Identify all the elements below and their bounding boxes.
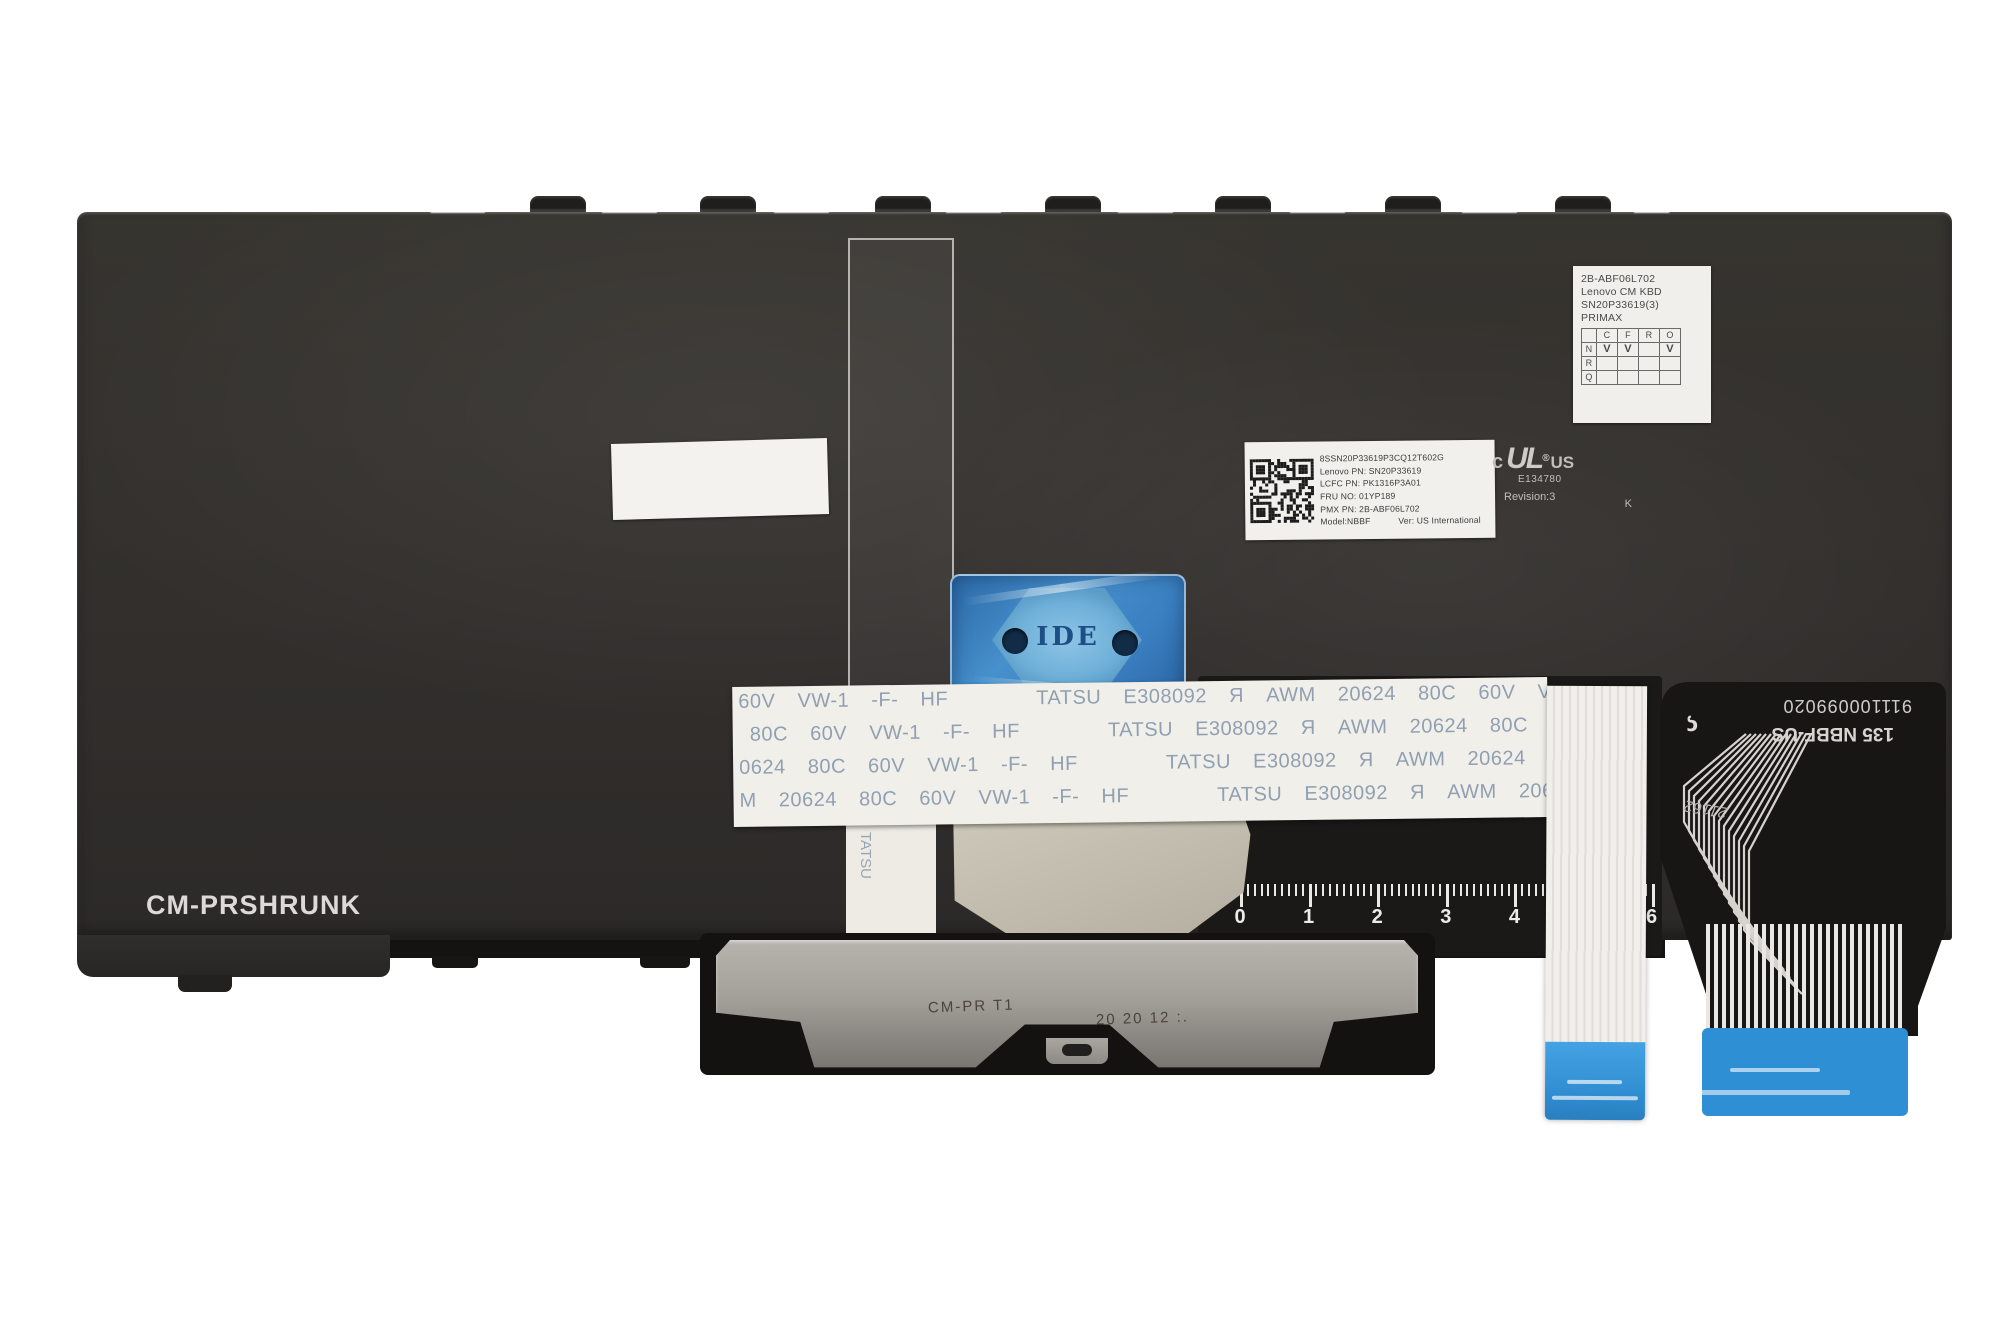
ruler-tick	[1309, 884, 1312, 907]
top-edge-highlight	[430, 209, 1670, 213]
ruler-tick	[1439, 884, 1441, 896]
ruler-tick	[1398, 884, 1400, 896]
primax-table-cell: V	[1660, 343, 1681, 357]
stiffener-highlight	[1552, 1096, 1638, 1100]
ruler-tick	[1528, 884, 1530, 896]
primax-table-cell: Q	[1582, 371, 1597, 385]
plate-bottom-tab	[178, 975, 232, 992]
ruler-tick	[1254, 884, 1256, 896]
primax-part-number: 2B-ABF06L702	[1581, 273, 1705, 286]
ruler-tick	[1363, 884, 1365, 896]
plate-lip-tab	[432, 956, 478, 968]
ruler-tick	[1357, 884, 1359, 896]
ruler-label-3: 3	[1440, 906, 1451, 929]
primax-spec-label: 2B-ABF06L702 Lenovo CM KBD SN20P33619(3)…	[1573, 266, 1711, 423]
plate-lip-tab	[640, 956, 690, 968]
ul-us: US	[1551, 454, 1575, 472]
primax-table-cell	[1639, 343, 1660, 357]
ruler-tick	[1487, 884, 1489, 896]
ruler-tick	[1343, 884, 1345, 896]
ruler-tick	[1288, 884, 1290, 896]
film-tail: TATSU	[846, 814, 936, 946]
ruler-tick	[1329, 884, 1331, 896]
bracket-center-tab	[1046, 1038, 1108, 1064]
ruler-tick	[1350, 884, 1352, 896]
primax-table-cell	[1597, 357, 1618, 371]
stiffener-highlight	[1730, 1068, 1820, 1072]
bracket-stamp-date: 20 20 12 :.	[1096, 1008, 1189, 1028]
primax-serial: SN20P33619(3)	[1581, 299, 1705, 312]
qr-version: Ver: US International	[1398, 515, 1481, 526]
flex-part-number: 911100099020	[1783, 696, 1912, 716]
qr-code	[1250, 459, 1315, 524]
ruler-label-4: 4	[1509, 906, 1520, 929]
ruler-tick	[1432, 884, 1434, 896]
ribbon-marking-row: 0624 80C 60V VW-1 -F- HF TATSU E308092 Я…	[739, 743, 1549, 780]
ruler-tick	[1480, 884, 1482, 896]
ruler-label-1: 1	[1303, 906, 1314, 929]
primax-option-table: CFRONVVVRQ	[1581, 328, 1681, 385]
primax-brand: PRIMAX	[1581, 312, 1705, 325]
ul-logo: UL®	[1506, 446, 1547, 472]
primax-table-cell	[1639, 357, 1660, 371]
ul-certification-mark: c UL® US E134780 K Revision:3	[1492, 446, 1622, 503]
qr-model: Model:NBBF	[1320, 515, 1398, 528]
ruler-label-2: 2	[1372, 906, 1383, 929]
ruler-tick	[1315, 884, 1317, 896]
ruler-tick	[1377, 884, 1380, 907]
primax-table-cell	[1582, 329, 1597, 343]
photo-canvas: 2B-ABF06L702 Lenovo CM KBD SN20P33619(3)…	[0, 0, 2000, 1333]
ul-canada-c: c	[1492, 452, 1503, 472]
ruler-tick	[1473, 884, 1475, 896]
ruler-tick	[1336, 884, 1338, 896]
registered-icon: ®	[1542, 453, 1547, 464]
qr-barcode-label: 8SSN20P33619P3CQ12T602G Lenovo PN: SN20P…	[1244, 440, 1495, 541]
film-tail-marking: TATSU	[857, 832, 874, 879]
ruler-tick	[1281, 884, 1283, 896]
ul-file-number: E134780	[1518, 474, 1622, 485]
ruler-tick	[1267, 884, 1269, 896]
primax-table-cell	[1639, 371, 1660, 385]
stiffener-highlight	[1567, 1080, 1622, 1084]
bracket-center-slot	[1062, 1044, 1092, 1056]
ide-marking: IDE	[952, 622, 1184, 652]
ruler-tick	[1508, 884, 1510, 896]
plate-marking-cm-prshrunk: CM-PRSHRUNK	[146, 890, 361, 921]
backlight-film-ribbon: 60V VW-1 -F- HF TATSU E308092 Я AWM 2062…	[732, 677, 1549, 827]
ruler-tick	[1384, 884, 1386, 896]
ruler-tick	[1322, 884, 1324, 896]
ruler-tick	[1453, 884, 1455, 896]
primax-table-cell	[1660, 371, 1681, 385]
ruler-tick	[1542, 884, 1544, 896]
qr-model-line: Model:NBBFVer: US International	[1320, 514, 1481, 528]
ul-k-mark: K	[1625, 498, 1632, 510]
primax-table-cell: O	[1660, 329, 1681, 343]
stiffener-highlight	[1670, 1090, 1850, 1095]
ruler-tick	[1391, 884, 1393, 896]
primax-table-cell: C	[1597, 329, 1618, 343]
ruler-tick	[1274, 884, 1276, 896]
primax-table-cell: R	[1582, 357, 1597, 371]
flex-model-marking: 135 NBBF-US	[1772, 723, 1894, 744]
primax-table-cell: F	[1618, 329, 1639, 343]
primax-table-cell: R	[1639, 329, 1660, 343]
ruler-tick	[1425, 884, 1427, 896]
ruler-tick	[1460, 884, 1462, 896]
trackpoint-flex-circuit: 911100099020 135 NBBF-US 21162 ς	[1650, 676, 1956, 1132]
ruler-tick	[1261, 884, 1263, 896]
bracket-stamp-left: CM-PR T1	[928, 996, 1015, 1016]
primax-table-cell: N	[1582, 343, 1597, 357]
keyboard-fpc-cable	[1545, 686, 1647, 1121]
ruler-tick	[1446, 884, 1449, 907]
flex-logo-icon: ς	[1686, 715, 1698, 739]
primax-table-cell: V	[1597, 343, 1618, 357]
primax-table-cell	[1597, 371, 1618, 385]
ruler-tick	[1295, 884, 1297, 896]
ribbon-marking-row: 80C 60V VW-1 -F- HF TATSU E308092 Я AWM …	[739, 710, 1549, 747]
ruler-tick	[1466, 884, 1468, 896]
primax-table-cell	[1618, 357, 1639, 371]
ruler-tick	[1418, 884, 1420, 896]
ul-revision: Revision:3	[1504, 491, 1622, 503]
plate-bottom-left-lobe	[77, 935, 390, 977]
ruler-tick	[1494, 884, 1496, 896]
primax-table-cell	[1618, 371, 1639, 385]
ruler-tick	[1521, 884, 1523, 896]
ruler-tick	[1412, 884, 1414, 896]
ruler-tick	[1535, 884, 1537, 896]
ribbon-marking-row: M 20624 80C 60V VW-1 -F- HF TATSU E30809…	[739, 776, 1548, 813]
ruler-tick	[1514, 884, 1517, 907]
qr-label-text: 8SSN20P33619P3CQ12T602G Lenovo PN: SN20P…	[1320, 451, 1481, 528]
ruler-tick	[1501, 884, 1503, 896]
fpc-blue-stiffener	[1545, 1042, 1645, 1121]
blank-white-label	[611, 438, 829, 520]
ruler-tick	[1405, 884, 1407, 896]
primax-table-cell	[1660, 357, 1681, 371]
primax-product-name: Lenovo CM KBD	[1581, 286, 1705, 299]
ruler-tick	[1370, 884, 1372, 896]
primax-table-cell: V	[1618, 343, 1639, 357]
ruler-tick	[1247, 884, 1249, 896]
ruler-label-0: 0	[1234, 906, 1245, 929]
ruler-tick	[1302, 884, 1304, 896]
